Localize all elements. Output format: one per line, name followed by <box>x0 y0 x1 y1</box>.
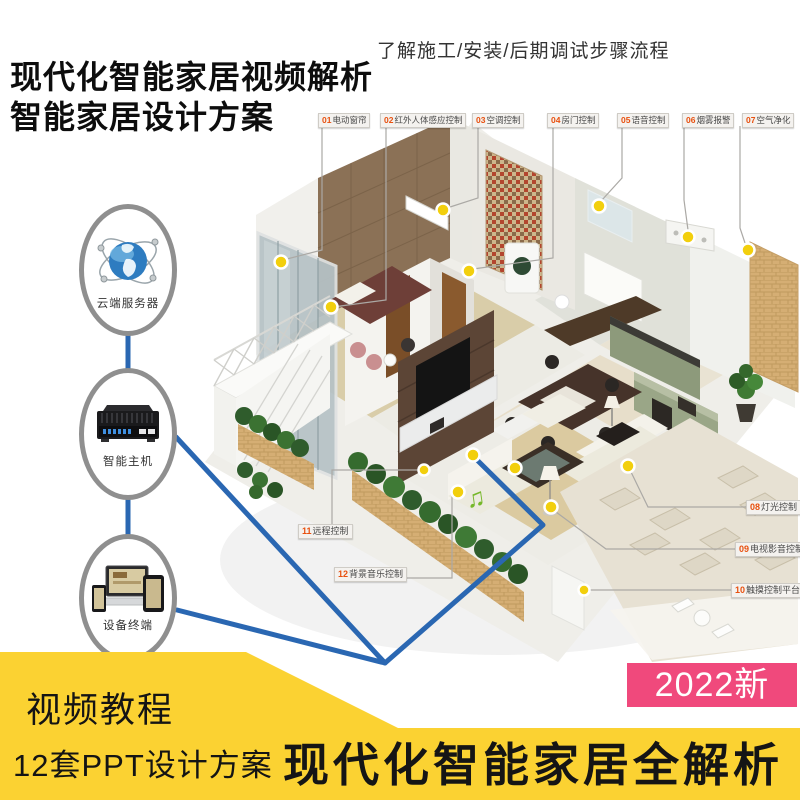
feature-label-05: 05语音控制 <box>617 113 669 128</box>
node-label: 智能主机 <box>103 453 153 469</box>
feature-label-01: 01电动窗帘 <box>318 113 370 128</box>
footer-banner: 现代化智能家居全解析 <box>283 729 783 795</box>
feature-label-06: 06烟雾报警 <box>682 113 734 128</box>
side-table <box>384 354 396 366</box>
feature-label-11: 11远程控制 <box>298 524 353 539</box>
devices-icon <box>89 563 167 615</box>
armchair <box>350 342 366 358</box>
feature-label-08: 08灯光控制 <box>746 500 800 515</box>
feature-label-04: 04房门控制 <box>547 113 599 128</box>
feature-label-12: 12背景音乐控制 <box>334 567 407 582</box>
brick-panel <box>750 242 798 392</box>
node-cloud-server: 云端服务器 <box>79 204 177 336</box>
feature-label-02: 02红外人体感应控制 <box>380 113 466 128</box>
toilet <box>555 295 569 309</box>
footer-tagline-1: 视频教程 <box>26 682 174 733</box>
armchair <box>366 354 382 370</box>
node-label: 设备终端 <box>103 617 153 633</box>
footer-tagline-2: 12套PPT设计方案 <box>13 740 273 785</box>
globe-network-icon <box>92 229 164 293</box>
node-label: 云端服务器 <box>97 295 160 311</box>
armchair <box>401 338 415 352</box>
feature-label-03: 03空调控制 <box>472 113 524 128</box>
promo-poster: ♫ <box>0 0 800 800</box>
feature-label-10: 10触摸控制平台 <box>731 583 800 598</box>
smart-host-icon <box>91 399 165 451</box>
feature-label-07: 07空气净化 <box>742 113 794 128</box>
node-smart-host: 智能主机 <box>79 368 177 500</box>
year-badge: 2022新 <box>627 663 797 707</box>
node-device-terminal: 设备终端 <box>79 534 177 662</box>
feature-label-09: 09电视影音控制 <box>735 542 800 557</box>
music-notes-icon: ♫ <box>464 481 487 513</box>
